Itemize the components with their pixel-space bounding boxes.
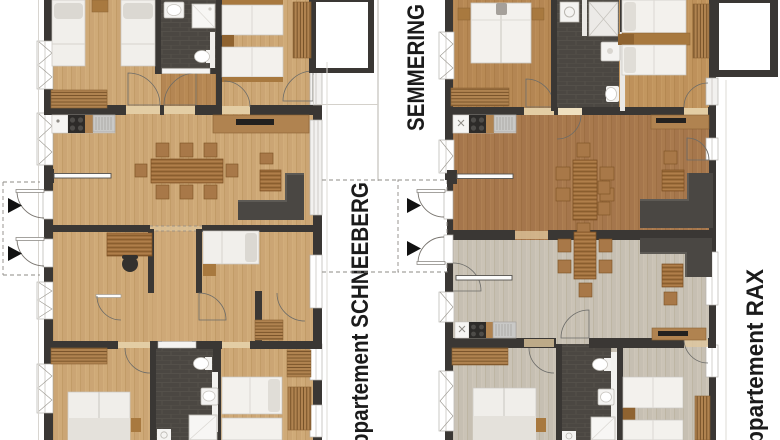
svg-text:Appartement SCHNEEBERG: Appartement SCHNEEBERG bbox=[347, 182, 374, 440]
svg-text:Appartement RAX: Appartement RAX bbox=[742, 269, 769, 440]
svg-text:SEMMERING: SEMMERING bbox=[403, 4, 430, 131]
